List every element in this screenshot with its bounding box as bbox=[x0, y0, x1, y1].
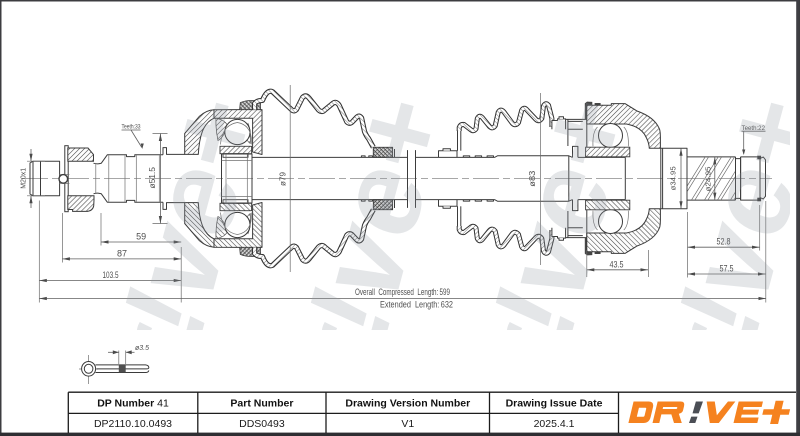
svg-text:DDS0493: DDS0493 bbox=[239, 418, 285, 430]
svg-text:Drawing Issue Date: Drawing Issue Date bbox=[506, 398, 603, 410]
svg-text:ø3.5: ø3.5 bbox=[135, 345, 149, 352]
svg-text:Dr!ve+: Dr!ve+ bbox=[63, 85, 286, 436]
svg-text:ø34.95: ø34.95 bbox=[669, 166, 678, 190]
svg-text:DP Number 41: DP Number 41 bbox=[97, 398, 169, 410]
svg-text:Teeth:33: Teeth:33 bbox=[122, 124, 141, 131]
svg-text:V1: V1 bbox=[401, 418, 414, 430]
svg-text:DP2110.10.0493: DP2110.10.0493 bbox=[94, 418, 172, 430]
svg-text:ø79: ø79 bbox=[279, 171, 288, 186]
svg-text:Drawing Version Number: Drawing Version Number bbox=[345, 398, 470, 410]
svg-text:Part Number: Part Number bbox=[230, 398, 293, 410]
svg-text:2025.4.1: 2025.4.1 bbox=[534, 418, 575, 430]
svg-text:M20x1: M20x1 bbox=[18, 168, 27, 189]
